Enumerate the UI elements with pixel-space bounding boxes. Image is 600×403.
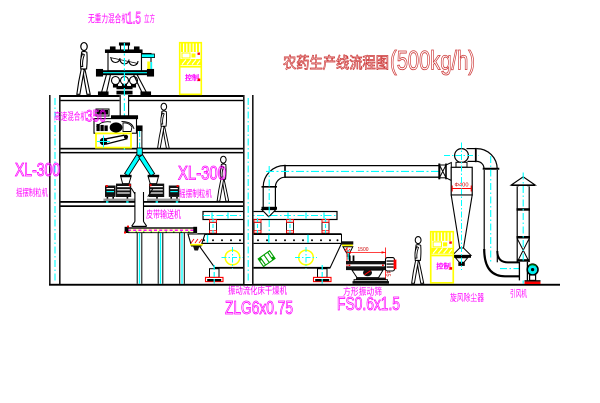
svg-text:皮带输送机: 皮带输送机 <box>146 208 181 221</box>
svg-text:(500kg/h): (500kg/h) <box>390 46 475 76</box>
svg-text:1500: 1500 <box>358 247 369 253</box>
svg-text:FS0.6x1.5: FS0.6x1.5 <box>337 294 400 314</box>
svg-text:1.5: 1.5 <box>127 9 141 28</box>
svg-text:无重力混合机: 无重力混合机 <box>88 12 128 25</box>
svg-text:摇摆制粒机: 摇摆制粒机 <box>16 187 48 199</box>
svg-text:高速混合机: 高速混合机 <box>54 110 87 123</box>
svg-text:农药生产线流程图: 农药生产线流程图 <box>283 54 389 72</box>
svg-text:旋风除尘器: 旋风除尘器 <box>450 292 484 304</box>
svg-text:摇摆制粒机: 摇摆制粒机 <box>179 188 212 200</box>
svg-text:振动流化床干燥机: 振动流化床干燥机 <box>228 285 287 297</box>
svg-text:引风机: 引风机 <box>510 288 527 300</box>
svg-text:立方: 立方 <box>144 13 155 25</box>
svg-text:XL-300: XL-300 <box>15 160 60 180</box>
svg-text:XL-300: XL-300 <box>178 164 226 185</box>
svg-text:350: 350 <box>86 107 106 126</box>
svg-text:ZLG6x0.75: ZLG6x0.75 <box>225 298 293 318</box>
